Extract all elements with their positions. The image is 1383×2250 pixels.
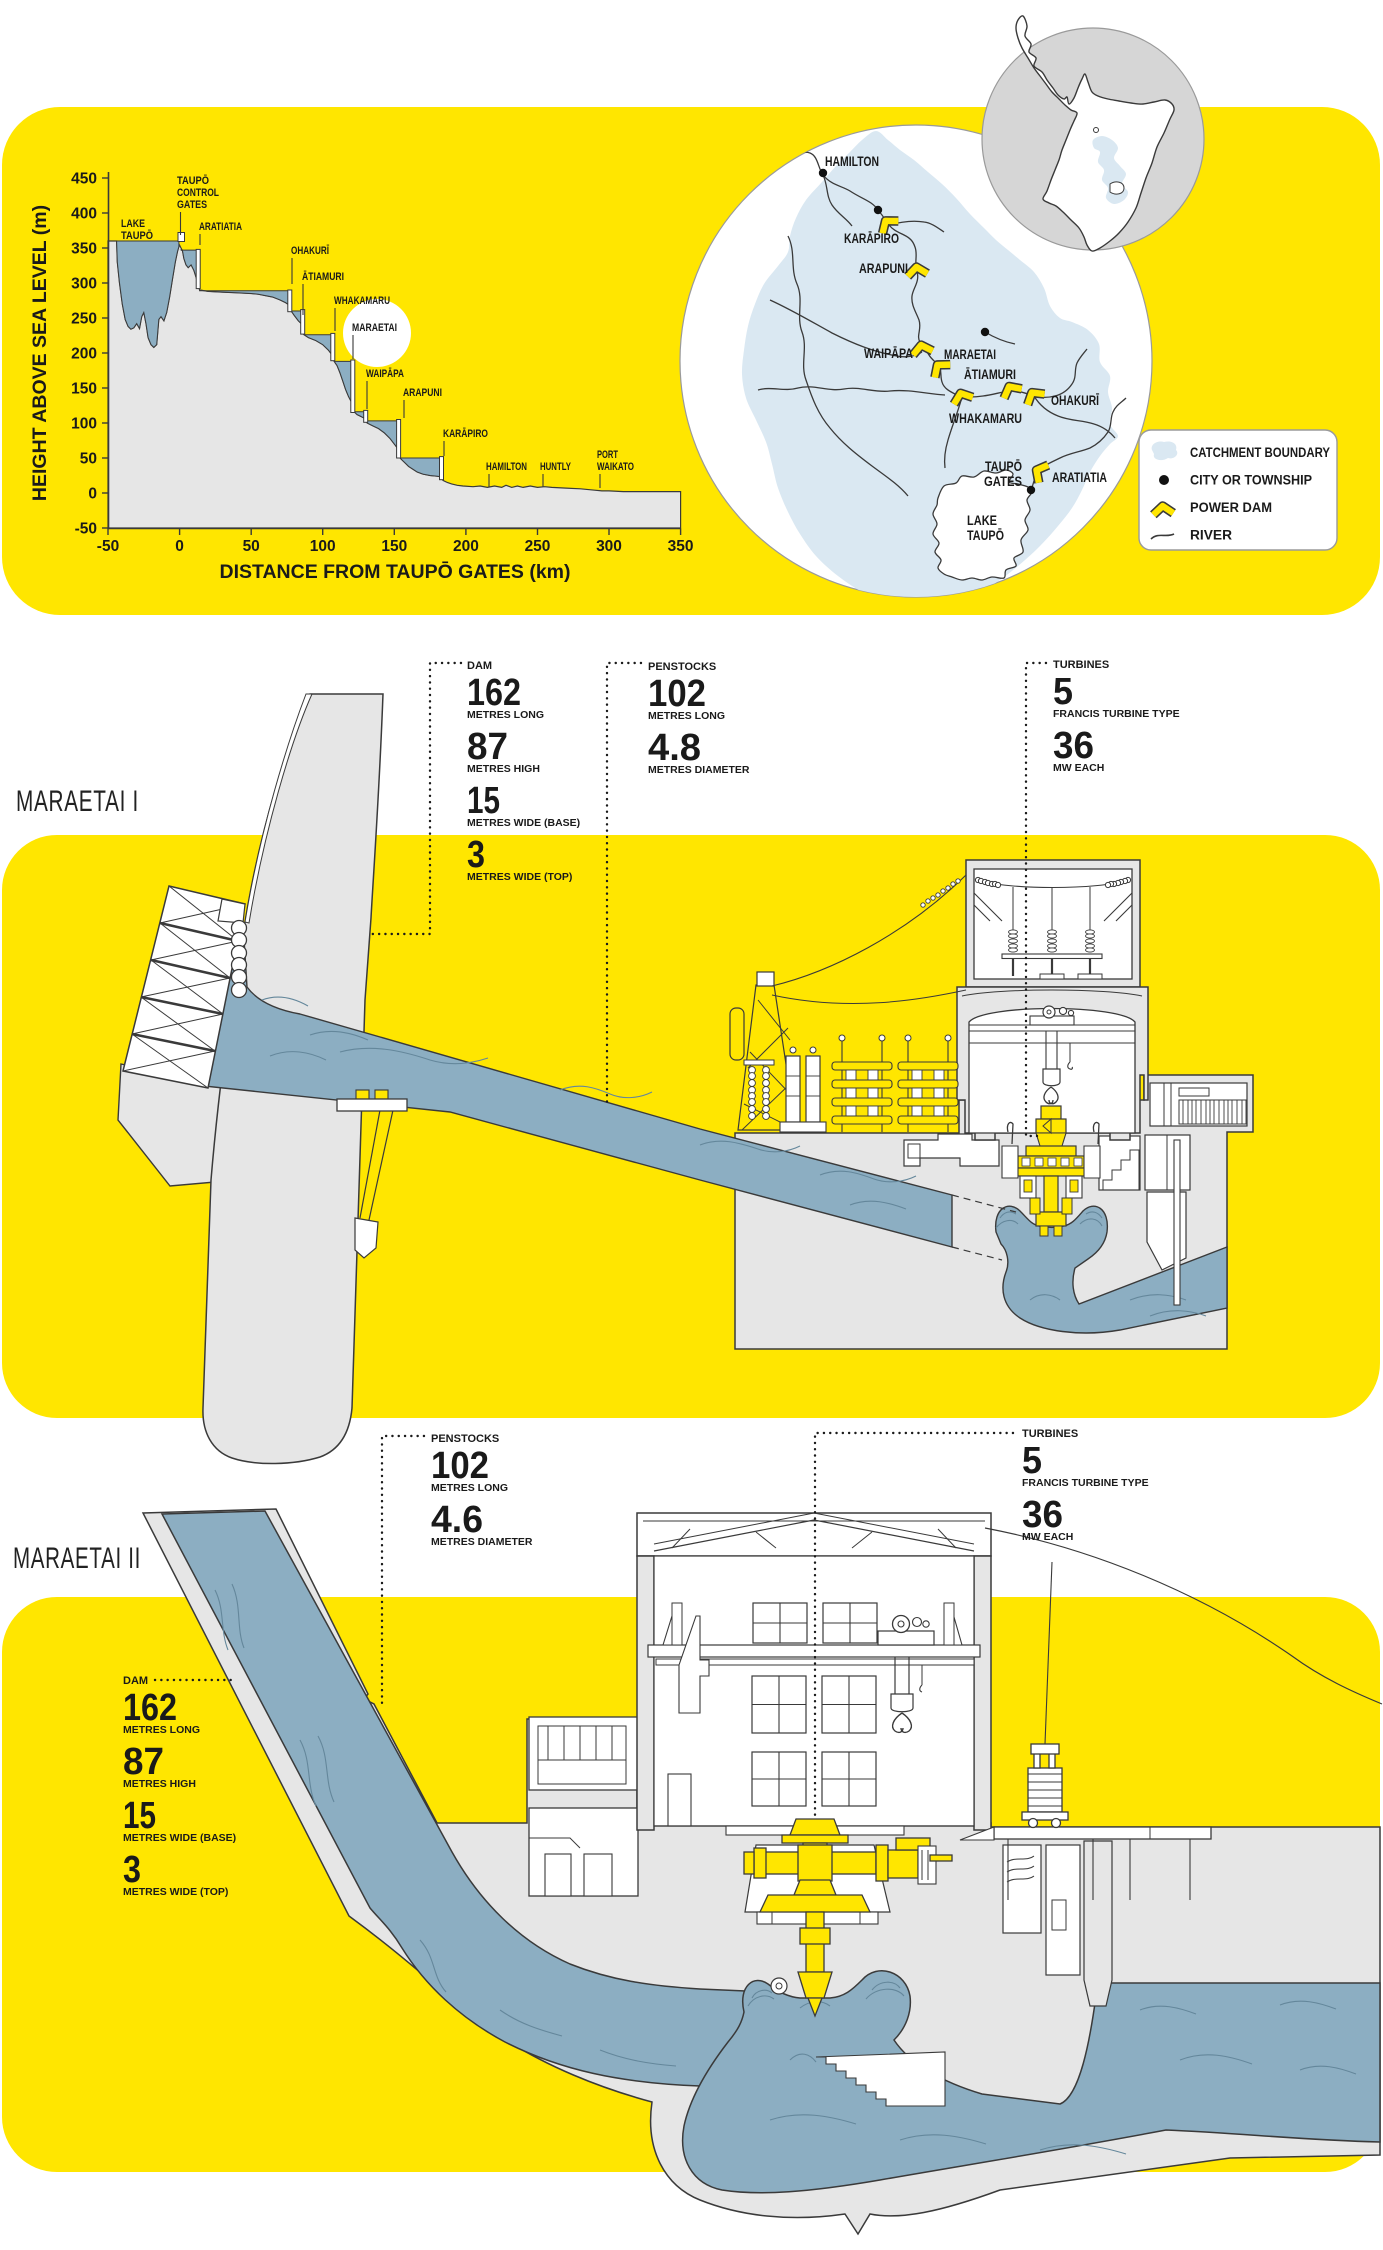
svg-text:162: 162 [467,672,521,714]
svg-text:150: 150 [381,538,407,555]
svg-text:5: 5 [1053,671,1073,713]
svg-text:102: 102 [648,673,706,715]
svg-text:METRES HIGH: METRES HIGH [123,1778,196,1790]
svg-text:ĀTIAMURI: ĀTIAMURI [302,271,344,283]
svg-text:LAKE: LAKE [967,513,997,528]
svg-text:150: 150 [71,381,97,398]
svg-text:ARATIATIA: ARATIATIA [199,221,242,233]
svg-text:WHAKAMARU: WHAKAMARU [949,411,1022,426]
svg-text:36: 36 [1053,725,1094,767]
svg-text:MARAETAI I: MARAETAI I [16,785,139,818]
svg-text:LAKE: LAKE [121,218,145,230]
svg-text:ARAPUNI: ARAPUNI [859,261,908,276]
svg-text:METRES WIDE (BASE): METRES WIDE (BASE) [467,817,580,829]
svg-text:MARAETAI: MARAETAI [944,347,996,362]
svg-text:GATES: GATES [984,474,1022,489]
svg-text:162: 162 [123,1687,177,1729]
svg-text:0: 0 [175,538,184,555]
svg-text:ARATIATIA: ARATIATIA [1052,470,1107,485]
svg-text:MW EACH: MW EACH [1022,1531,1073,1543]
svg-text:KARĀPIRO: KARĀPIRO [844,231,899,246]
svg-text:TAUPŌ: TAUPŌ [121,230,153,242]
svg-text:METRES WIDE (TOP): METRES WIDE (TOP) [123,1886,228,1898]
svg-text:FRANCIS TURBINE TYPE: FRANCIS TURBINE TYPE [1053,708,1180,720]
svg-text:3: 3 [467,834,485,876]
svg-text:METRES WIDE (TOP): METRES WIDE (TOP) [467,871,572,883]
svg-text:HAMILTON: HAMILTON [825,154,879,169]
svg-text:102: 102 [431,1445,489,1487]
svg-text:METRES HIGH: METRES HIGH [467,763,540,775]
svg-text:300: 300 [71,276,97,293]
svg-text:GATES: GATES [177,199,207,211]
svg-text:87: 87 [467,726,508,768]
svg-text:350: 350 [668,538,694,555]
svg-text:RIVER: RIVER [1190,528,1232,543]
svg-text:400: 400 [71,206,97,223]
svg-text:250: 250 [525,538,551,555]
svg-text:METRES LONG: METRES LONG [123,1724,200,1736]
svg-text:MARAETAI II: MARAETAI II [13,1542,141,1575]
svg-text:DAM: DAM [467,660,492,672]
svg-text:POWER DAM: POWER DAM [1190,500,1272,515]
svg-text:TURBINES: TURBINES [1022,1428,1078,1440]
svg-text:100: 100 [310,538,336,555]
svg-text:KARĀPIRO: KARĀPIRO [443,428,488,440]
svg-text:3: 3 [123,1849,141,1891]
svg-text:50: 50 [243,538,260,555]
svg-text:WAIPĀPA: WAIPĀPA [864,346,913,361]
svg-text:FRANCIS TURBINE TYPE: FRANCIS TURBINE TYPE [1022,1477,1149,1489]
svg-text:HUNTLY: HUNTLY [540,461,571,473]
svg-text:CONTROL: CONTROL [177,187,219,199]
svg-text:PENSTOCKS: PENSTOCKS [431,1433,499,1445]
svg-text:15: 15 [123,1795,156,1837]
svg-text:50: 50 [80,451,97,468]
svg-text:-50: -50 [75,521,97,538]
svg-text:OHAKURĪ: OHAKURĪ [1051,393,1099,408]
svg-text:100: 100 [71,416,97,433]
svg-text:4.6: 4.6 [431,1499,483,1541]
svg-text:WAIPĀPA: WAIPĀPA [366,368,404,380]
svg-text:300: 300 [596,538,622,555]
svg-text:5: 5 [1022,1440,1042,1482]
svg-text:MARAETAI: MARAETAI [352,322,397,334]
svg-text:250: 250 [71,311,97,328]
svg-text:METRES DIAMETER: METRES DIAMETER [648,764,750,776]
svg-text:DISTANCE FROM TAUPŌ GATES (km): DISTANCE FROM TAUPŌ GATES (km) [220,561,571,583]
svg-text:HEIGHT ABOVE SEA LEVEL (m): HEIGHT ABOVE SEA LEVEL (m) [29,205,51,501]
svg-text:0: 0 [88,486,97,503]
svg-text:CITY OR TOWNSHIP: CITY OR TOWNSHIP [1190,473,1312,488]
svg-text:CATCHMENT BOUNDARY: CATCHMENT BOUNDARY [1190,445,1330,460]
svg-text:MW EACH: MW EACH [1053,762,1104,774]
svg-text:PENSTOCKS: PENSTOCKS [648,661,716,673]
svg-text:WHAKAMARU: WHAKAMARU [334,295,390,307]
svg-text:ĀTIAMURI: ĀTIAMURI [964,367,1016,382]
svg-text:OHAKURĪ: OHAKURĪ [291,245,330,257]
svg-text:WAIKATO: WAIKATO [597,461,634,473]
svg-text:87: 87 [123,1741,164,1783]
svg-text:METRES LONG: METRES LONG [648,710,725,722]
svg-text:METRES DIAMETER: METRES DIAMETER [431,1536,533,1548]
svg-text:200: 200 [71,346,97,363]
svg-text:PORT: PORT [597,449,618,461]
svg-text:TAUPŌ: TAUPŌ [985,459,1022,474]
svg-text:TAUPŌ: TAUPŌ [177,175,209,187]
svg-text:15: 15 [467,780,500,822]
svg-text:350: 350 [71,241,97,258]
svg-text:TURBINES: TURBINES [1053,659,1109,671]
svg-text:METRES LONG: METRES LONG [467,709,544,721]
svg-text:450: 450 [71,171,97,188]
svg-text:TAUPŌ: TAUPŌ [967,528,1004,543]
svg-text:ARAPUNI: ARAPUNI [403,387,442,399]
svg-text:METRES LONG: METRES LONG [431,1482,508,1494]
svg-text:-50: -50 [97,538,119,555]
svg-text:METRES WIDE (BASE): METRES WIDE (BASE) [123,1832,236,1844]
svg-text:36: 36 [1022,1494,1063,1536]
svg-text:DAM: DAM [123,1675,148,1687]
svg-text:HAMILTON: HAMILTON [486,461,527,473]
svg-text:4.8: 4.8 [648,727,701,769]
svg-text:200: 200 [453,538,479,555]
